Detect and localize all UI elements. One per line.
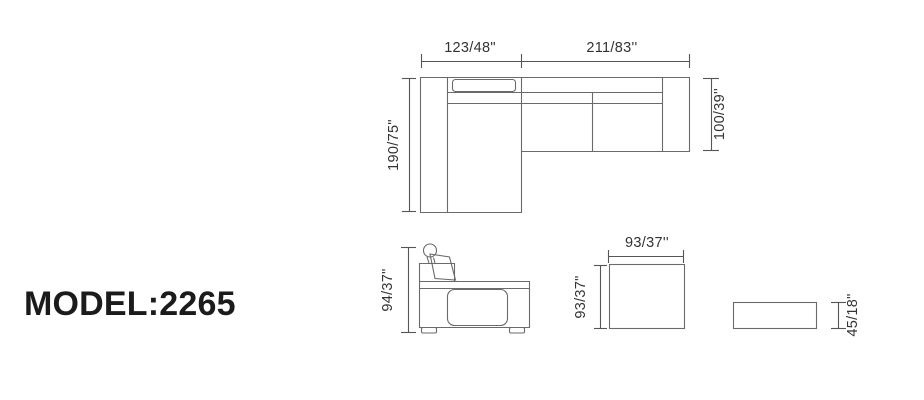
- ottoman-dim-depth-label: 93/37": [573, 275, 589, 318]
- ottoman-height-dimension: 45/18": [831, 293, 861, 336]
- side-height-dimension: 94/37": [380, 247, 416, 333]
- side-foot-left: [422, 328, 437, 334]
- plan-top-dimension: 123/48" 211/83'': [421, 40, 690, 68]
- plan-pillow: [453, 80, 516, 92]
- plan-dim-left-label: 190/75": [386, 119, 402, 171]
- plan-right-dimension: 100/39'': [703, 78, 728, 151]
- ottoman-side-outline: [734, 303, 817, 329]
- ottoman-depth-dimension: 93/37": [573, 265, 607, 329]
- ottoman-dim-width-label: 93/37'': [625, 235, 669, 251]
- ottoman-top-outline: [610, 265, 685, 329]
- plan-dim-top-left-label: 123/48": [444, 40, 496, 56]
- plan-dim-top-right-label: 211/83'': [586, 40, 637, 56]
- technical-drawing-svg: 123/48" 211/83'' 190/75" 100/39'': [0, 0, 924, 400]
- ottoman-width-dimension: 93/37'': [608, 235, 684, 263]
- side-body-outline: [420, 264, 530, 328]
- plan-outline: [421, 78, 690, 213]
- plan-dim-right-label: 100/39'': [712, 88, 728, 140]
- side-dim-height-label: 94/37": [380, 268, 396, 311]
- plan-view: 123/48" 211/83'' 190/75" 100/39'': [386, 40, 728, 213]
- ottoman-side-view: 45/18": [734, 293, 862, 336]
- side-seat-cushion: [448, 290, 508, 326]
- plan-left-dimension: 190/75": [386, 78, 416, 212]
- model-number-label: MODEL:2265: [24, 285, 236, 324]
- side-foot-right: [510, 328, 525, 334]
- ottoman-top-view: 93/37'' 93/37": [573, 235, 685, 329]
- side-view: 94/37": [380, 244, 530, 333]
- ottoman-dim-height-label: 45/18": [845, 293, 861, 336]
- furniture-dimension-drawing: 123/48" 211/83'' 190/75" 100/39'': [0, 0, 924, 400]
